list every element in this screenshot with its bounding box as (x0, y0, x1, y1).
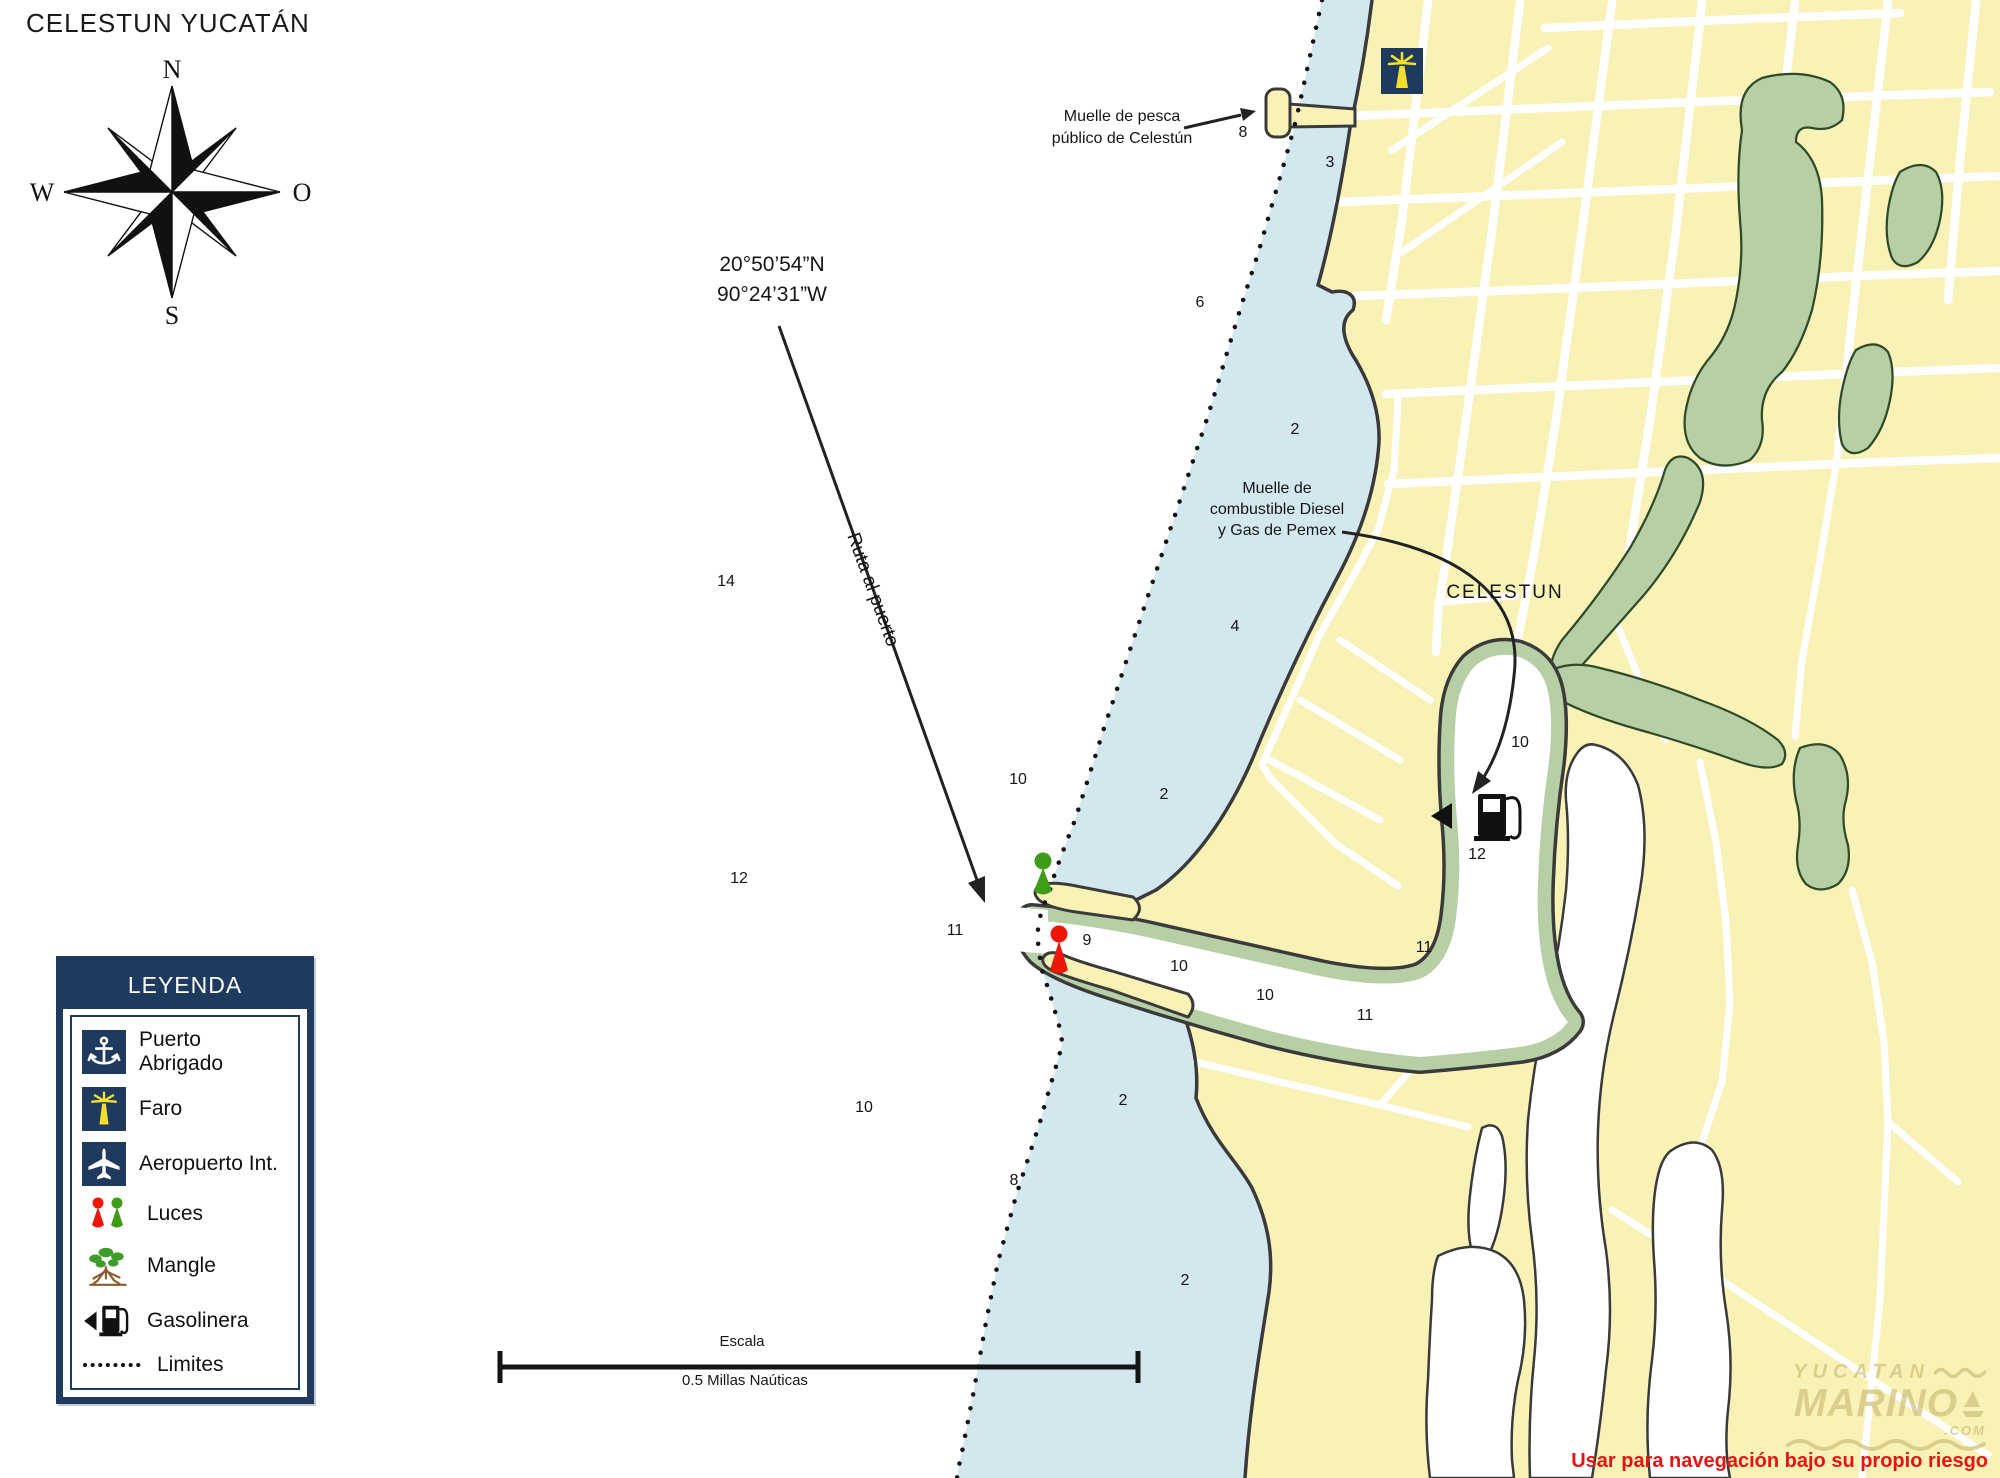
legend-item-label: Faro (139, 1097, 182, 1121)
depth-sounding: 8 (1239, 124, 1248, 142)
legend-item-limites: Limites (82, 1353, 288, 1377)
depth-sounding: 2 (1291, 421, 1300, 439)
anchor-icon (82, 1030, 126, 1074)
legend-item-mangle: Mangle (82, 1243, 288, 1289)
gas-pump-icon (82, 1300, 134, 1342)
watermark-line2: MARINO (1794, 1384, 1958, 1423)
legend-item-label: Gasolinera (147, 1309, 249, 1333)
coordinates-line2: 90°24’31”W (717, 280, 827, 310)
depth-sounding: 12 (730, 870, 748, 888)
depth-sounding: 9 (1083, 932, 1092, 950)
legend-item-label: Aeropuerto Int. (139, 1152, 278, 1176)
legend-item-faro: Faro (82, 1087, 288, 1131)
legend-item-luces: Luces (82, 1196, 288, 1232)
nautical-chart-canvas: N S W O CELESTUN YUCATÁN 20°50’54”N 90°2… (0, 0, 2000, 1478)
depth-sounding: 10 (1256, 987, 1274, 1005)
lighthouse-icon (1381, 48, 1423, 94)
depth-sounding: 4 (1231, 618, 1240, 636)
depth-sounding: 11 (947, 922, 964, 940)
wave-icon (1934, 1365, 1986, 1379)
legend-item-label: Limites (157, 1353, 224, 1377)
fuel-pier-label: Muelle de combustible Diesel y Gas de Pe… (1210, 478, 1344, 541)
lighthouse-icon (82, 1087, 126, 1131)
legend-item-aeropuerto: Aeropuerto Int. (82, 1142, 288, 1186)
watermark-line1: YUCATAN (1793, 1362, 1930, 1382)
wave-icon (1786, 1437, 1986, 1451)
fishing-pier-label: Muelle de pesca público de Celestún (1052, 106, 1193, 149)
compass-east-label: O (293, 178, 312, 207)
legend-item-label: Luces (147, 1202, 203, 1226)
compass-south-label: S (165, 301, 179, 330)
lights-icon (82, 1196, 134, 1232)
brand-watermark: YUCATAN MARINO .COM (1761, 1362, 1986, 1455)
legend-item-label: Mangle (147, 1254, 216, 1278)
sailboat-icon (1960, 1389, 1986, 1419)
fuel-pier-line1: Muelle de (1210, 478, 1344, 499)
legend: LEYENDA Puerto Abrigado Faro Aeropuerto … (56, 956, 314, 1404)
depth-sounding: 10 (855, 1099, 873, 1117)
depth-sounding: 3 (1326, 154, 1335, 172)
legend-item-gasolinera: Gasolinera (82, 1300, 288, 1342)
depth-sounding: 10 (1511, 734, 1529, 752)
coordinates-label: 20°50’54”N 90°24’31”W (717, 250, 827, 311)
depth-sounding: 14 (717, 573, 735, 591)
disclaimer-text: Usar para navegación bajo su propio ries… (1571, 1450, 1988, 1473)
fuel-pier-line2: combustible Diesel (1210, 499, 1344, 520)
depth-sounding: 12 (1468, 846, 1486, 864)
depth-sounding: 11 (1357, 1007, 1374, 1025)
airplane-icon (82, 1142, 126, 1186)
page-title: CELESTUN YUCATÁN (26, 8, 310, 39)
depth-sounding: 2 (1181, 1272, 1190, 1290)
scale-value: 0.5 Millas Naúticas (682, 1372, 808, 1389)
legend-item-puerto-abrigado: Puerto Abrigado (82, 1028, 288, 1076)
compass-west-label: W (30, 178, 55, 207)
depth-sounding: 2 (1119, 1092, 1128, 1110)
town-label: CELESTUN (1446, 582, 1563, 604)
fuel-pier-line3: y Gas de Pemex (1210, 520, 1344, 541)
fishing-pier-line1: Muelle de pesca (1052, 106, 1193, 128)
depth-sounding: 10 (1170, 958, 1188, 976)
depth-sounding: 10 (1009, 771, 1027, 789)
depth-sounding: 6 (1196, 294, 1205, 312)
watermark-tld: .COM (1761, 1424, 1986, 1437)
legend-item-label: Puerto Abrigado (139, 1028, 288, 1076)
mangrove-icon (82, 1243, 134, 1289)
depth-sounding: 11 (1416, 939, 1433, 957)
coordinates-line1: 20°50’54”N (717, 250, 827, 280)
depth-sounding: 8 (1010, 1172, 1019, 1190)
legend-header: LEYENDA (63, 963, 307, 1009)
depth-sounding: 2 (1160, 786, 1169, 804)
compass-north-label: N (163, 55, 182, 84)
scale-title: Escala (719, 1333, 764, 1350)
dotted-line-icon (82, 1360, 144, 1370)
fishing-pier-line2: público de Celestún (1052, 128, 1193, 150)
legend-panel: Puerto Abrigado Faro Aeropuerto Int. Luc… (70, 1015, 300, 1390)
